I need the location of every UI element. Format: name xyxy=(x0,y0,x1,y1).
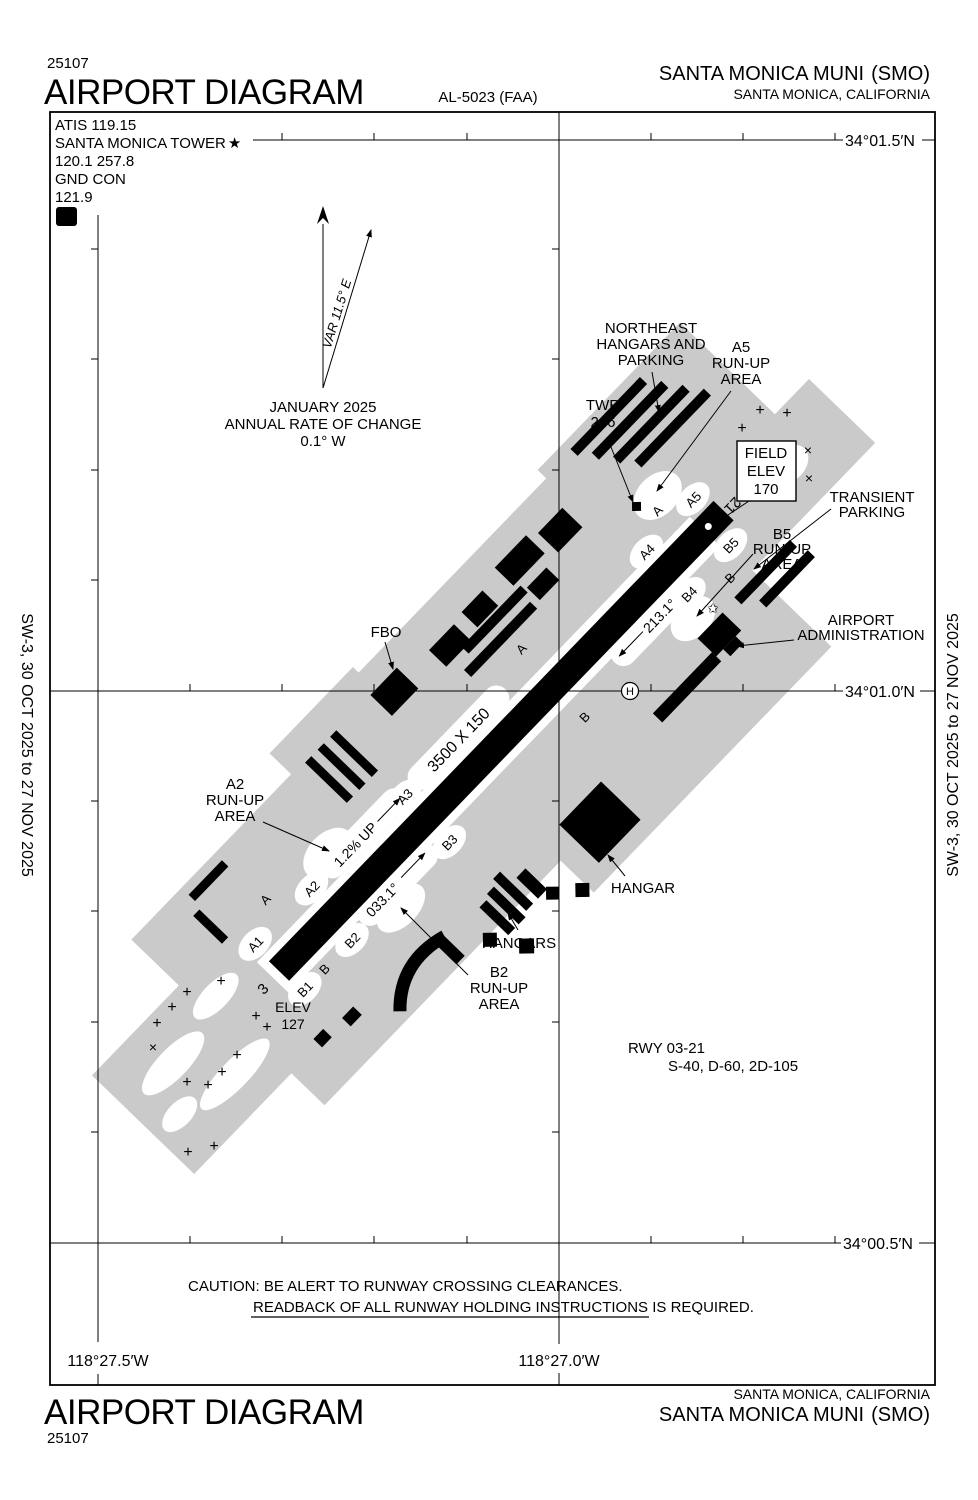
tower-freqs: 120.1 257.8 xyxy=(55,153,134,170)
building-diamond xyxy=(575,883,589,897)
lat-mid-label: 34°01.0′N xyxy=(845,684,915,701)
ne-hangars-label-3: PARKING xyxy=(618,352,684,369)
lon-center-label: 118°27.0′W xyxy=(518,1353,600,1370)
annual-change-line1: JANUARY 2025 xyxy=(269,399,376,416)
plus-mark: + xyxy=(182,1074,191,1091)
atis-label: ATIS 119.15 xyxy=(55,117,136,134)
a5-runup-label-2: RUN-UP xyxy=(712,355,770,372)
footer: SANTA MONICA, CALIFORNIA SANTA MONICA MU… xyxy=(44,1386,931,1447)
comm-box: ATIS 119.15 SANTA MONICA TOWER★ 120.1 25… xyxy=(55,117,241,226)
footer-title: AIRPORT DIAGRAM xyxy=(44,1393,364,1432)
fbo-label: FBO xyxy=(371,624,402,641)
gnd-con-label: GND CON xyxy=(55,171,126,188)
al-number: AL-5023 (FAA) xyxy=(438,89,537,106)
tower-name: SANTA MONICA TOWER xyxy=(55,135,226,152)
elev-sw-label-2: 127 xyxy=(281,1016,305,1032)
a5-runup-label-1: A5 xyxy=(732,339,750,356)
plus-mark: + xyxy=(782,405,791,422)
rwy-info-line1: RWY 03-21 xyxy=(628,1040,705,1057)
ne-hangars-label-1: NORTHEAST xyxy=(605,320,697,337)
chart-number-bottom: 25107 xyxy=(47,1430,89,1447)
plus-mark: + xyxy=(262,1019,271,1036)
a2-runup-label-2: RUN-UP xyxy=(206,792,264,809)
annotation-layer: ATIS 119.15 SANTA MONICA TOWER★ 120.1 25… xyxy=(18,117,962,1447)
plus-mark: + xyxy=(167,999,176,1016)
building-diamond xyxy=(546,887,559,900)
city-state-footer: SANTA MONICA, CALIFORNIA xyxy=(733,1386,930,1402)
transient-label-2: PARKING xyxy=(839,504,905,521)
field-elev-label-2: ELEV xyxy=(747,463,785,480)
city-state-header: SANTA MONICA, CALIFORNIA xyxy=(733,86,930,102)
edition-left: SW-3, 30 OCT 2025 to 27 NOV 2025 xyxy=(18,613,35,877)
airport-id-text: (SMO) xyxy=(871,63,930,85)
caution-line1: CAUTION: BE ALERT TO RUNWAY CROSSING CLE… xyxy=(188,1278,623,1295)
airport-name-footer-text: SANTA MONICA MUNI xyxy=(659,1404,864,1426)
airport-diagram-page: 25107 AIRPORT DIAGRAM AL-5023 (FAA) SANT… xyxy=(0,0,978,1500)
lat-top-label: 34°01.5′N xyxy=(845,133,915,150)
tower-symbol xyxy=(632,502,641,511)
annual-change-line3: 0.1° W xyxy=(300,433,346,450)
b2-runup-label-2: RUN-UP xyxy=(470,980,528,997)
ne-hangars-label-2: HANGARS AND xyxy=(596,336,705,353)
twr-label-2: 246 xyxy=(590,414,615,431)
annual-change-line2: ANNUAL RATE OF CHANGE xyxy=(225,416,422,433)
rwy-info-line2: S-40, D-60, 2D-105 xyxy=(668,1058,798,1075)
tower-label: SANTA MONICA TOWER★ xyxy=(55,135,241,152)
cross-mark: × xyxy=(149,1039,157,1055)
part-time-star-icon: ★ xyxy=(228,135,241,152)
plus-mark: + xyxy=(216,973,225,990)
admin-label-2: ADMINISTRATION xyxy=(797,627,924,644)
hangar-label: HANGAR xyxy=(611,880,675,897)
cross-mark: × xyxy=(804,442,812,458)
a2-runup-label-3: AREA xyxy=(215,808,256,825)
compass: VAR 11.5° E JANUARY 2025 ANNUAL RATE OF … xyxy=(225,206,422,450)
plus-mark: + xyxy=(183,1144,192,1161)
elev-sw-label-1: ELEV xyxy=(275,999,311,1015)
gnd-freq: 121.9 xyxy=(55,189,93,206)
airport-name-footer: SANTA MONICA MUNI(SMO) xyxy=(659,1404,930,1426)
edition-right: SW-3, 30 OCT 2025 to 27 NOV 2025 xyxy=(945,613,962,877)
header: 25107 AIRPORT DIAGRAM AL-5023 (FAA) SANT… xyxy=(44,55,931,112)
lon-left-label: 118°27.5′W xyxy=(67,1353,149,1370)
b2-runup-label-3: AREA xyxy=(479,996,520,1013)
helipad-h: H xyxy=(626,686,634,698)
b5-runup-label-3: AREA xyxy=(762,556,803,573)
hold-d-letter: D xyxy=(61,209,71,225)
b2-runup-label-1: B2 xyxy=(490,964,508,981)
page-title: AIRPORT DIAGRAM xyxy=(44,73,364,112)
north-arrow-head-icon xyxy=(317,206,329,224)
twr-label-1: TWR xyxy=(586,397,620,414)
plus-mark: + xyxy=(755,402,764,419)
a5-runup-label-3: AREA xyxy=(721,371,762,388)
field-elev-label-1: FIELD xyxy=(745,445,788,462)
chart-number-top: 25107 xyxy=(47,55,89,72)
plus-mark: + xyxy=(182,984,191,1001)
airport-id-footer-text: (SMO) xyxy=(871,1404,930,1426)
plus-mark: + xyxy=(152,1015,161,1032)
plus-mark: + xyxy=(232,1047,241,1064)
cross-mark: × xyxy=(805,470,813,486)
plus-mark: + xyxy=(217,1064,226,1081)
hangars-label: HANGARS xyxy=(482,935,556,952)
caution-line2: READBACK OF ALL RUNWAY HOLDING INSTRUCTI… xyxy=(253,1299,754,1316)
plus-mark: + xyxy=(251,1008,260,1025)
airport-name-header: SANTA MONICA MUNI(SMO) xyxy=(659,63,930,85)
plus-mark: + xyxy=(737,420,746,437)
a2-runup-label-1: A2 xyxy=(226,776,244,793)
plus-mark: + xyxy=(209,1138,218,1155)
field-elev-label-3: 170 xyxy=(753,481,778,498)
lat-bottom-label: 34°00.5′N xyxy=(843,1236,913,1253)
variation-label: VAR 11.5° E xyxy=(319,277,354,350)
airport-name-text: SANTA MONICA MUNI xyxy=(659,63,864,85)
beacon-star-icon: ✩ xyxy=(707,600,719,616)
plus-mark: + xyxy=(203,1077,212,1094)
